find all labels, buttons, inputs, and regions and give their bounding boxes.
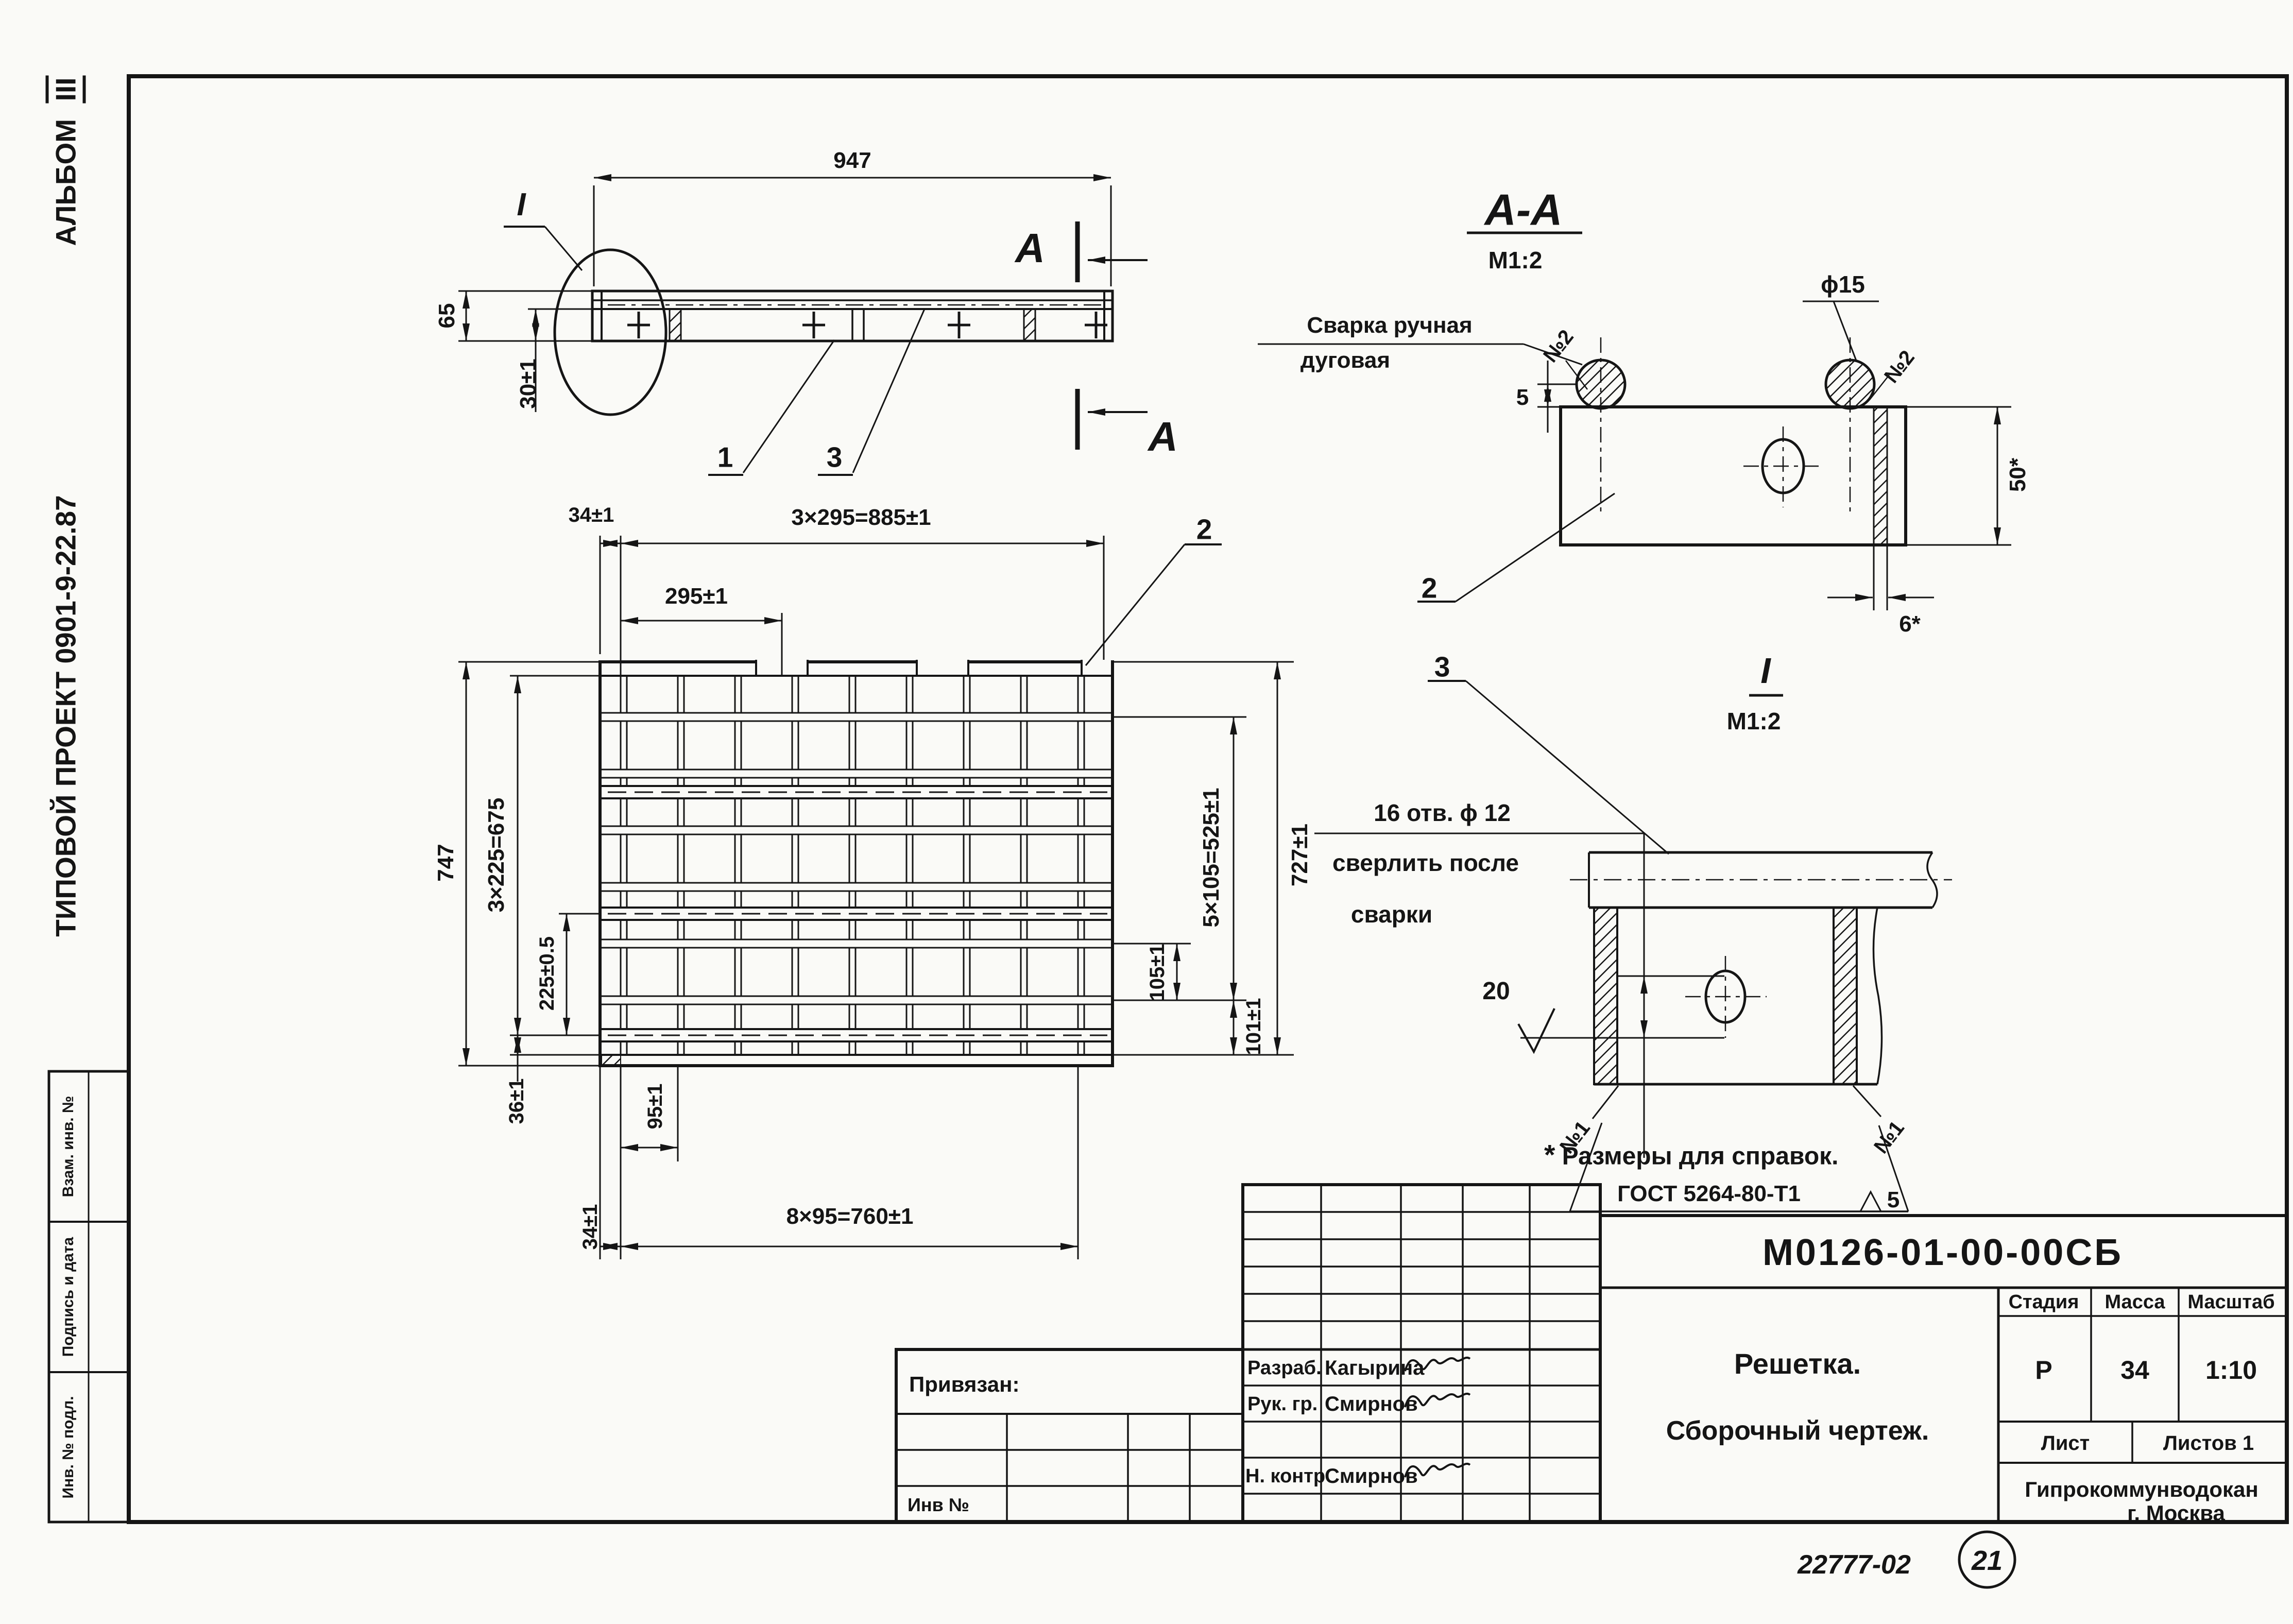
detail-i-title: I [1760, 653, 1770, 689]
tb-role-nkontr: Н. контр [1245, 1466, 1325, 1486]
tb-sheets-label: Листов 1 [2163, 1433, 2254, 1454]
stamp-row-inv: Инв. № подл. [61, 1396, 76, 1498]
dim-6: 6* [1899, 613, 1921, 636]
section-aa-scale: М1:2 [1488, 248, 1543, 272]
tb-name2: Сборочный чертеж. [1666, 1417, 1929, 1444]
dim-36: 36±1 [506, 1079, 527, 1124]
dim-3x295: 3×295=885±1 [791, 506, 931, 529]
reference-note: * Размеры для справок. [1544, 1141, 1839, 1169]
item-3-leader-detail: 3 [1434, 653, 1450, 681]
gost-label: ГОСТ 5264-80-Т1 [1617, 1183, 1801, 1205]
plan-view [458, 536, 1294, 1259]
item-2-leader-aa: 2 [1422, 574, 1438, 603]
tb-org-line1: Гипрокоммунводокан [2025, 1479, 2258, 1500]
item-1-leader: 1 [717, 443, 733, 472]
section-letter-top: А [1015, 228, 1045, 269]
tb-mass-label: Масса [2104, 1292, 2165, 1312]
footer-doc-number: 22777-02 [1798, 1551, 1911, 1578]
weld-note-line2: дуговая [1300, 349, 1390, 372]
tb-inv: Инв № [908, 1496, 969, 1514]
dim-20: 20 [1482, 979, 1510, 1004]
tb-org-line2: г. Москва [2127, 1502, 2225, 1524]
tb-role-razrab: Разраб. [1247, 1358, 1322, 1378]
item-2-leader-plan: 2 [1196, 516, 1212, 544]
detail-i [1314, 681, 1952, 1211]
holes-note-line3: сварки [1351, 902, 1432, 926]
tb-name1: Решетка. [1734, 1349, 1861, 1378]
drawing-sheet: АЛЬБОМ III ТИПОВОЙ ПРОЕКТ 0901-9-22.87 В… [0, 0, 2293, 1624]
dim-105: 105±1 [1147, 944, 1168, 1001]
dim-747: 747 [435, 844, 457, 881]
detail-mark-i: I [517, 189, 525, 221]
tb-attach: Привязан: [909, 1374, 1019, 1395]
dim-34-top: 34±1 [569, 505, 614, 525]
section-letter-bottom: А [1148, 416, 1178, 457]
dim-5: 5 [1516, 386, 1529, 409]
holes-note-line1: 16 отв. ϕ 12 [1374, 801, 1511, 825]
project-label: ТИПОВОЙ ПРОЕКТ 0901-9-22.87 [52, 495, 80, 936]
holes-note-line2: сверлить после [1332, 851, 1519, 875]
footer-page-number: 21 [1972, 1547, 2003, 1575]
dim-8x95: 8×95=760±1 [786, 1205, 914, 1228]
tb-stage-value: Р [2035, 1357, 2052, 1383]
tb-sheet-label: Лист [2041, 1433, 2090, 1454]
tb-name-ruk: Смирнов [1325, 1394, 1418, 1414]
tb-name-nkontr: Смирнов [1325, 1466, 1418, 1486]
weld-note-line1: Сварка ручная [1307, 314, 1472, 337]
dim-95: 95±1 [645, 1084, 665, 1130]
stamp-row-podpis: Подпись и дата [61, 1237, 76, 1357]
top-view [458, 178, 1148, 475]
dim-295: 295±1 [665, 585, 728, 608]
dim-947: 947 [833, 149, 871, 172]
detail-i-scale: М1:2 [1727, 709, 1781, 733]
tb-stage-label: Стадия [2009, 1292, 2079, 1312]
tb-doc-number: М0126-01-00-00СБ [1762, 1234, 2123, 1271]
tb-scale-label: Масштаб [2187, 1292, 2274, 1312]
dim-30: 30±1 [517, 358, 540, 409]
dim-727: 727±1 [1289, 824, 1311, 886]
tb-name-razrab: Кагырина [1325, 1358, 1424, 1378]
dim-5x105: 5×105=525±1 [1200, 788, 1223, 927]
dim-dia15: ϕ15 [1821, 272, 1865, 296]
section-aa [1258, 233, 2011, 610]
stamp-row-vzam: Взам. инв. № [61, 1096, 76, 1198]
section-aa-title: А-А [1484, 189, 1562, 232]
gost-weld-size: 5 [1887, 1189, 1900, 1211]
tb-mass-value: 34 [2120, 1357, 2149, 1383]
drawing-linework [0, 0, 2293, 1624]
dim-50: 50* [2007, 458, 2029, 492]
tb-scale-value: 1:10 [2205, 1357, 2257, 1383]
tb-role-ruk: Рук. гр. [1247, 1394, 1317, 1414]
dim-34-bottom: 34±1 [580, 1204, 601, 1250]
dim-101: 101±1 [1243, 998, 1264, 1055]
album-label: АЛЬБОМ III [52, 75, 80, 246]
dim-65: 65 [436, 303, 458, 329]
dim-225: 225±0.5 [537, 936, 557, 1011]
dim-3x225: 3×225=675 [485, 798, 508, 913]
item-3-leader: 3 [827, 443, 843, 472]
